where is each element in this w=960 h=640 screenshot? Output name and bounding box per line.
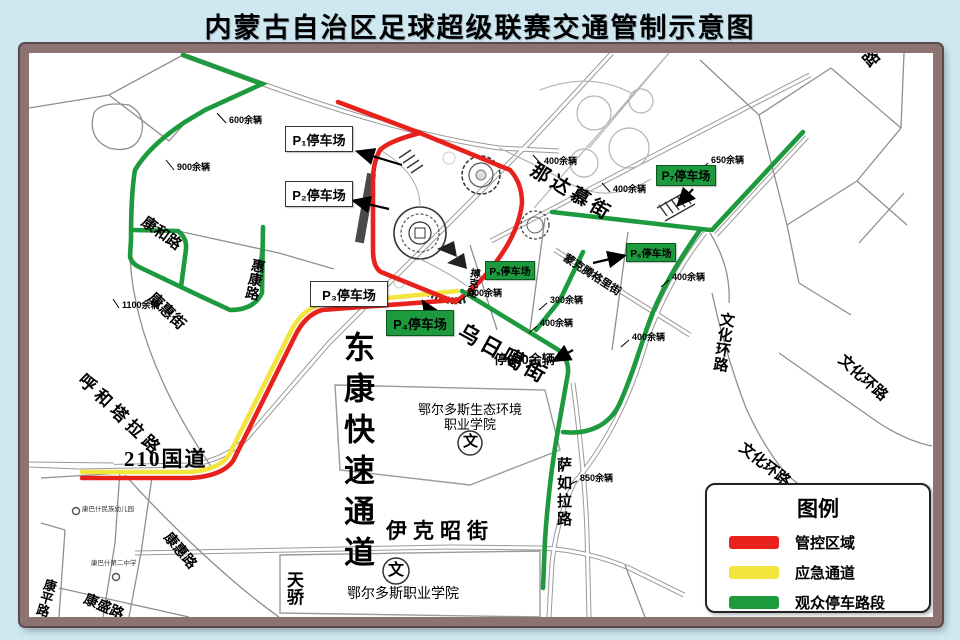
school-label: 康巴什第二中学 [91,561,137,568]
parking-p1-label: P₁停车场 [285,126,353,152]
road-label-sarula: 萨如拉路 [555,457,570,529]
capacity-1100: 1100余辆 [122,301,160,310]
legend-item-spectator-parking: 观众停车路段 [729,592,929,613]
capacity-800-stop: 停800余辆 [494,353,555,366]
capacity-400-b: 400余辆 [613,185,646,194]
capacity-850: 850余辆 [580,474,613,483]
legend-label-yellow: 应急通道 [795,562,855,583]
capacity-400-d: 400余辆 [540,319,573,328]
legend-item-emergency: 应急通道 [729,562,929,583]
voc-college-wen-icon: 文 [388,563,404,579]
page-title: 内蒙古自治区足球超级联赛交通管制示意图 [0,6,960,45]
capacity-400-a: 400余辆 [544,157,577,166]
eco-college-wen-icon: 文 [463,435,478,450]
parking-p6-label: P₆停车场 [626,243,676,262]
eco-college-name-line1: 鄂尔多斯生态环境 [385,403,555,416]
road-label-tianjiao: 天骄 [285,571,302,605]
parking-p3-label: P₃停车场 [310,281,388,307]
road-label-dongkang: 东康快速通道 [341,331,372,577]
kindergarten-label: 康巴什民族幼儿园 [82,507,134,514]
capacity-900: 900余辆 [177,163,210,172]
road-label-g210: 210国道 [124,449,208,470]
capacity-400-f: 400余辆 [672,273,705,282]
legend-swatch-red [729,536,779,549]
road-label-yikezhao: 伊克昭街 [386,521,494,542]
map-canvas: 康和路 惠康路 康惠街 呼和塔拉路 210国道 东康快速通道 康惠路 康平路 康… [29,53,933,617]
legend-label-green: 观众停车路段 [795,592,885,613]
legend-swatch-green [729,596,779,609]
legend-title: 图例 [707,493,929,523]
capacity-650: 650余辆 [711,156,744,165]
parking-p5-label: P₅停车场 [485,261,535,280]
capacity-400-e: 400余辆 [632,333,665,342]
legend-label-red: 管控区域 [795,532,855,553]
parking-p7-label: P₇停车场 [656,165,716,186]
legend-swatch-yellow [729,566,779,579]
capacity-600: 600余辆 [229,116,262,125]
voc-college-name: 鄂尔多斯职业学院 [347,588,459,602]
parking-p4-label: P₄停车场 [386,310,454,336]
legend-item-control-zone: 管控区域 [729,532,929,553]
page: { "title": "内蒙古自治区足球超级联赛交通管制示意图", "legen… [0,0,960,640]
map-frame: 康和路 惠康路 康惠街 呼和塔拉路 210国道 东康快速通道 康惠路 康平路 康… [20,44,942,626]
eco-college-name-line2: 职业学院 [385,418,555,431]
capacity-300: 300余辆 [550,296,583,305]
legend: 图例 管控区域 应急通道 观众停车路段 [705,483,931,613]
capacity-400-c: 400余辆 [469,289,502,298]
parking-p2-label: P₂停车场 [285,181,353,207]
